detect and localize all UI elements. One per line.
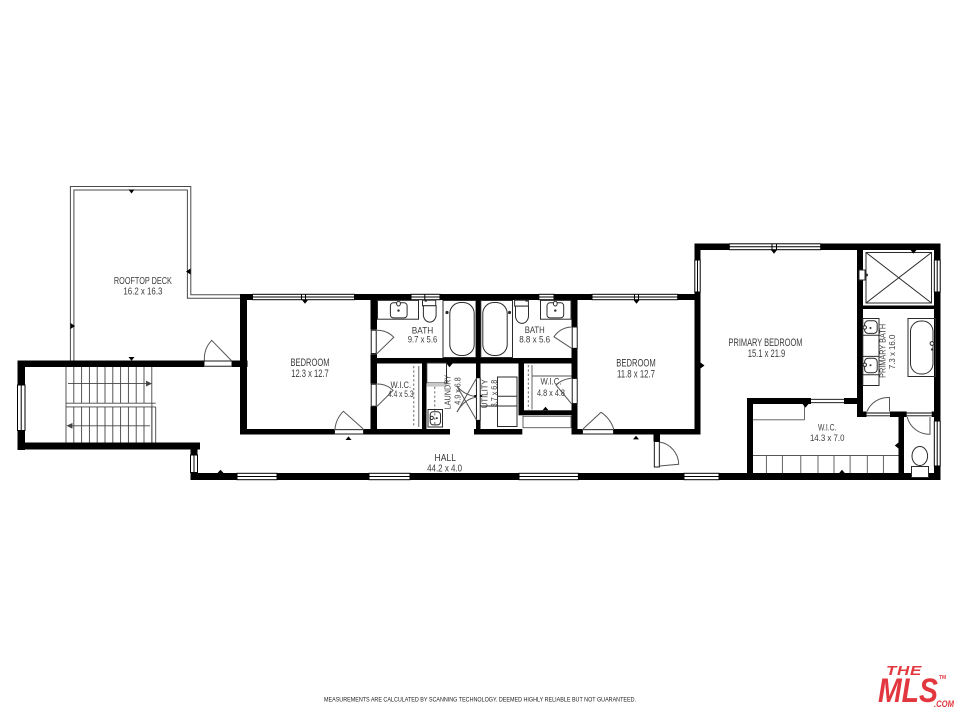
svg-text:W.I.C.: W.I.C.: [541, 376, 562, 386]
svg-text:15.1 x 21.9: 15.1 x 21.9: [748, 348, 786, 360]
svg-text:16.2 x 16.3: 16.2 x 16.3: [123, 287, 162, 298]
svg-text:LAUNDRY: LAUNDRY: [442, 375, 452, 410]
svg-text:MLS: MLS: [878, 672, 938, 710]
svg-text:4.8 x 4.8: 4.8 x 4.8: [537, 388, 565, 398]
svg-text:PRIMARY BATH: PRIMARY BATH: [878, 324, 888, 378]
svg-text:4.4 x 5.3: 4.4 x 5.3: [388, 389, 414, 399]
svg-text:11.8 x 12.7: 11.8 x 12.7: [617, 369, 655, 381]
svg-text:TM: TM: [939, 675, 946, 681]
svg-text:12.3 x 12.7: 12.3 x 12.7: [291, 368, 329, 380]
svg-text:.COM: .COM: [934, 699, 954, 709]
svg-text:8.8 x 5.6: 8.8 x 5.6: [519, 334, 550, 345]
svg-text:9.7 x 5.6: 9.7 x 5.6: [408, 335, 438, 346]
svg-text:7.3 x 16.0: 7.3 x 16.0: [887, 334, 897, 369]
svg-text:4.9 x 6.8: 4.9 x 6.8: [452, 377, 462, 405]
svg-text:UTILITY: UTILITY: [480, 379, 490, 408]
svg-text:MEASUREMENTS ARE CALCULATED BY: MEASUREMENTS ARE CALCULATED BY SCANNING …: [324, 697, 636, 704]
svg-text:14.3 x 7.0: 14.3 x 7.0: [810, 433, 845, 444]
svg-text:44.2 x 4.0: 44.2 x 4.0: [427, 463, 462, 474]
svg-text:ROOFTOP DECK: ROOFTOP DECK: [114, 276, 172, 287]
svg-text:3.7 x 6.8: 3.7 x 6.8: [489, 380, 499, 408]
